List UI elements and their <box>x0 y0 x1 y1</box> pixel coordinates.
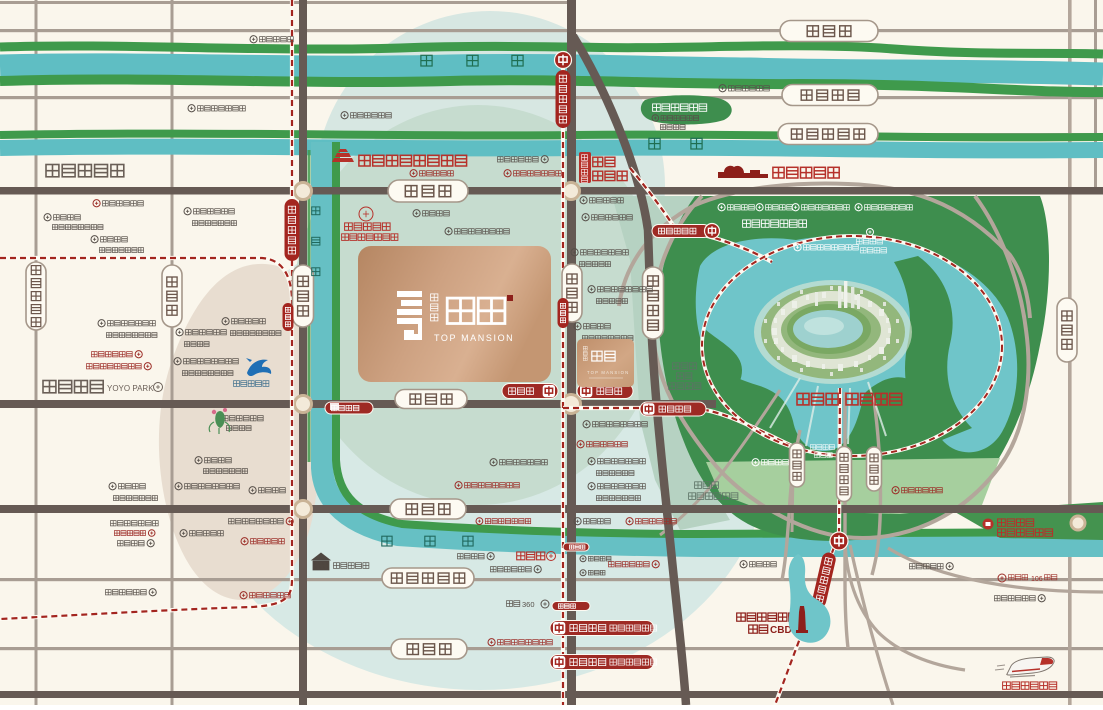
svg-text:YOYO PARK: YOYO PARK <box>107 384 154 393</box>
svg-text:TOP MANSION: TOP MANSION <box>434 333 514 343</box>
svg-text:360: 360 <box>522 600 535 609</box>
svg-text:CBD: CBD <box>770 625 792 636</box>
svg-text:TOP MANSION: TOP MANSION <box>587 370 629 375</box>
svg-text:106: 106 <box>1031 576 1043 583</box>
